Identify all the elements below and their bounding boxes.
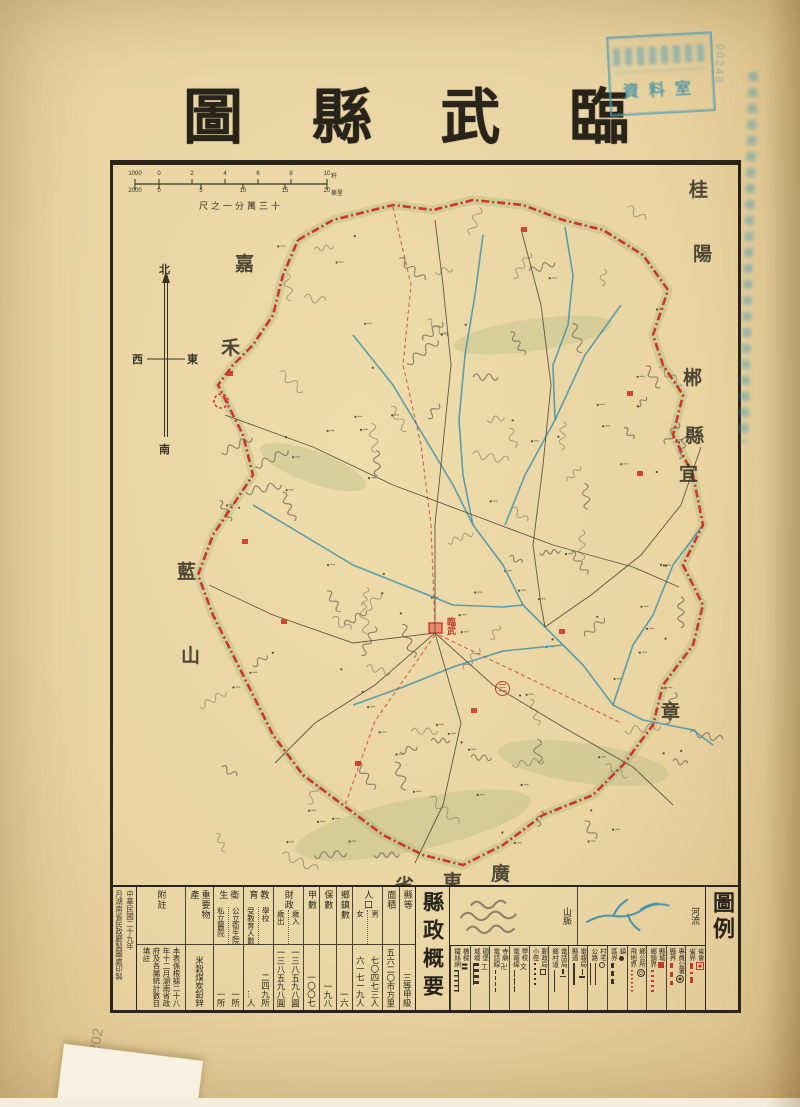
legend-point-symbol (658, 962, 664, 968)
stats-header: 甲數 (306, 890, 317, 910)
stats-header: 保數 (322, 890, 333, 910)
title-char: 圖 (183, 69, 243, 156)
stats-header: 縣等 (402, 890, 413, 910)
scale-tick: 8 (289, 171, 292, 177)
legend-point-label: 鄉公所 (637, 948, 644, 968)
stats-column: 財政歲入歲出一三八五九八圓一三八五九八圓 (273, 887, 303, 1010)
stats-header: 衛生 (217, 890, 239, 907)
stats-value: 本表係根據二十八年十二月湖南省政府及各屬統計數目填註 (141, 947, 181, 1007)
neighbor-label: 省 (395, 871, 414, 885)
scale-tick: 1000 (128, 171, 141, 177)
legend-line-label: 區界 (609, 948, 616, 961)
compass-north: 北 (159, 261, 170, 277)
legend-item: 鎮區界 (607, 946, 627, 1010)
neighbor-label: 山 (181, 641, 200, 668)
legend-line-label: 省界 (688, 948, 695, 961)
stats-header: 附註 (155, 890, 166, 910)
legend-line-sample (651, 970, 654, 992)
neighbor-label: 藍 (177, 557, 196, 584)
stats-value: 一三八五九八圓 (290, 948, 300, 1008)
info-strip: 中華民國二十九年 月湖南省民政廳製圖處印製 縣等三等甲級面積五六二〇市方里人口男… (113, 885, 738, 1010)
legend-point-symbol (696, 962, 704, 970)
stats-value: 三等甲級 (402, 973, 412, 1007)
legend-line-label: 飛地界 (629, 948, 636, 968)
scale-tick: 2 (190, 171, 193, 177)
paper-edge (0, 1098, 800, 1107)
stats-column: 衛生公立衛生院私立醫院一所一所 (213, 887, 243, 1010)
stats-value: 二四九所 (261, 973, 271, 1007)
stats-column: 面積五六二〇市方里 (382, 887, 398, 1010)
legend-title: 圖例 (705, 887, 738, 1010)
legend: 山脈河流 省會省界專員公署縣界縣城鄉鎮界鄉公所飛地界鎮區界村宅公路電報局縣道電話… (450, 887, 705, 1010)
neighbor-label: 東 (443, 867, 462, 885)
legend-point-label: 電話局 (559, 948, 566, 968)
stats-value: 米穀煤炭鉛鋅 (194, 956, 204, 1007)
stats-column: 縣等三等甲級 (399, 887, 415, 1010)
stats-subheader: 歲入 (291, 910, 300, 944)
legend-item: 專員公署縣界 (666, 946, 686, 1010)
legend-line-label: 縣界 (668, 948, 675, 961)
stats-subheader: 公立衛生院 (231, 907, 240, 945)
legend-line-sample (611, 963, 614, 985)
neighbor-label: 章 (661, 697, 680, 724)
legend-line-sample (534, 963, 536, 985)
legend-point-symbol (637, 969, 645, 977)
compass-south: 南 (159, 441, 170, 457)
stats-header: 面積 (385, 890, 396, 910)
map-drawing (113, 165, 738, 885)
legend-line-sample (573, 963, 575, 985)
stats-subheader: 歲出 (276, 910, 285, 944)
scale-tick: 10 (240, 188, 247, 194)
stats-column: 重要物產米穀煤炭鉛鋅 (185, 887, 213, 1010)
legend-line-label: 電話線 (492, 948, 499, 968)
scale-tick: 粁 (331, 171, 337, 180)
county-seat-marker (429, 623, 442, 633)
stamp-reading-room-text: 資料室 (614, 69, 710, 108)
legend-line-sample (590, 963, 596, 985)
legend-item: 省會省界 (685, 946, 705, 1010)
legend-point-symbol (579, 969, 585, 978)
scale-tick: 4 (223, 171, 226, 177)
legend-line-label: 縣道 (570, 948, 577, 961)
legend-item: 電話局鄉村道 (548, 946, 568, 1010)
legend-item: 電報局縣道 (568, 946, 588, 1010)
legend-point-label: 縣城 (657, 948, 664, 961)
stats-column: 教育學校受教育人數二四九所…人 (243, 887, 273, 1010)
stats-header: 教育 (247, 890, 269, 907)
stats-header: 重要物產 (188, 890, 210, 924)
legend-line-sample (473, 963, 479, 985)
stats-value: 一九八 (323, 982, 333, 1008)
scale-caption: 尺之一分萬三十 (161, 199, 321, 212)
legend-point-symbol: 〓 (461, 962, 468, 972)
legend-item: 碉堡工城墻 (470, 946, 490, 1010)
scale-tick: 2000 (128, 188, 141, 194)
stats-value: 一所 (216, 990, 226, 1007)
legend-line-label: 城墻 (472, 948, 479, 961)
legend-line-label: 電報線 (511, 948, 518, 968)
legend-terrain-label: 河流 (689, 907, 702, 925)
legend-point-symbol (676, 975, 684, 983)
scale-tick: 0 (157, 188, 160, 194)
map-sheet: 圖縣武臨 尺之一分萬三十 10000246810200005101520粁華里 … (0, 0, 800, 1107)
compass-west: 西 (132, 351, 143, 367)
district-boundaries (345, 207, 621, 805)
town-markers (227, 227, 643, 766)
legend-terrain-river: 河流 (577, 887, 705, 945)
paper-edge-shadow (766, 0, 800, 1107)
neighbor-label: 禾 (221, 333, 240, 360)
legend-line-sample (631, 970, 633, 992)
legend-line-sample (514, 970, 515, 992)
library-stamp: 資料室 (606, 31, 716, 116)
legend-point-symbol (599, 962, 605, 968)
legend-point-label: 寺廟 (500, 948, 507, 961)
stats-value: 六一七一九人 (355, 956, 365, 1007)
map-title: 圖縣武臨 (183, 70, 629, 154)
county-seat-label: 臨武 (445, 617, 458, 635)
neighbor-label: 縣 (685, 421, 704, 448)
legend-item: 村宅公路 (587, 946, 607, 1010)
neighbor-label: 嘉 (235, 249, 254, 276)
stats-subheader: 受教育人數 (246, 907, 255, 945)
district-numeral: 三 (495, 681, 510, 696)
colophon-line-1: 中華民國二十九年 (125, 890, 136, 1010)
legend-line-sample (554, 970, 555, 992)
stats-value: 七〇四七三人 (370, 956, 380, 1007)
neighbor-label: 宜 (679, 459, 698, 486)
legend-line-sample (454, 970, 459, 992)
neighbor-label: 桂 (689, 175, 708, 202)
legend-point-label: 學校 (520, 948, 527, 961)
legend-point-symbol (619, 956, 624, 961)
legend-line-sample (690, 963, 693, 985)
terrain-shading (198, 200, 703, 875)
scale-tick: 5 (199, 188, 202, 194)
colophon-line-2: 月湖南省民政廳製圖處印製 (114, 890, 125, 1010)
legend-point-label: 專員公署 (677, 948, 684, 974)
legend-point-label: 電報局 (579, 948, 586, 968)
legend-line-label: 鄉村道 (551, 948, 558, 968)
statistics-title: 縣政概要 (416, 887, 450, 1010)
legend-item: 縣城鄉鎮界 (646, 946, 666, 1010)
legend-item: 橋樑〓鐵絲網 (450, 946, 470, 1010)
scale-tick: 15 (282, 188, 289, 194)
stats-value: 五六二〇市方里 (386, 948, 396, 1008)
map-area: 尺之一分萬三十 10000246810200005101520粁華里 北 西 東… (113, 165, 738, 885)
stats-header: 鄉鎮數 (339, 890, 350, 920)
stats-header: 人口 (362, 890, 373, 910)
title-char: 縣 (312, 69, 372, 156)
neighbor-label: 陽 (693, 239, 712, 266)
legend-item: 學校文電報線 (509, 946, 529, 1010)
stamp-illegible-row (612, 38, 707, 74)
legend-point-label: 碉堡 (481, 948, 488, 961)
legend-point-symbol: 卍 (500, 962, 507, 972)
stats-subheader: 私立醫院 (216, 907, 225, 945)
legend-line-sample (495, 970, 496, 992)
stats-column: 附註本表係根據二十八年十二月湖南省政府及各屬統計數目填註 (137, 887, 185, 1010)
legend-line-label: 鄉鎮界 (649, 948, 656, 968)
county-statistics-table: 縣等三等甲級面積五六二〇市方里人口男女七〇四七三人六一七一九人鄉鎮數一六保數一九… (137, 887, 416, 1010)
stats-value: 一所 (231, 990, 241, 1007)
handwritten-margin-note (739, 72, 758, 442)
legend-columns: 省會省界專員公署縣界縣城鄉鎮界鄉公所飛地界鎮區界村宅公路電報局縣道電話局鄉村道郵… (450, 946, 705, 1010)
stats-value: 一〇〇七 (306, 973, 316, 1007)
neighbor-label: 郴 (683, 363, 702, 390)
legend-point-symbol (560, 969, 566, 977)
legend-point-symbol: 工 (481, 962, 488, 972)
stats-value: 一三八五九八圓 (276, 948, 286, 1008)
legend-point-label: 鎮 (618, 948, 625, 955)
legend-line-label: 鐵絲網 (453, 948, 460, 968)
catalog-number: 00248 (713, 44, 726, 85)
legend-line-label: 小徑 (531, 948, 538, 961)
stats-column: 鄉鎮數一六 (336, 887, 352, 1010)
stats-subheader: 女 (356, 910, 365, 944)
legend-point-label: 郵政局 (540, 948, 547, 968)
title-char: 武 (440, 69, 500, 156)
legend-point-label: 橋樑 (461, 948, 468, 961)
legend-terrain-label: 山脈 (561, 907, 574, 925)
stats-column: 人口男女七〇四七三人六一七一九人 (352, 887, 382, 1010)
compass-rose: 北 西 東 南 (131, 265, 201, 461)
legend-item: 郵政局小徑 (529, 946, 549, 1010)
compass-east: 東 (187, 351, 198, 367)
stats-subheader: 男 (371, 910, 380, 944)
colophon: 中華民國二十九年 月湖南省民政廳製圖處印製 (113, 887, 137, 1010)
scale-tick: 華里 (331, 188, 343, 197)
scale-bar: 尺之一分萬三十 10000246810200005101520粁華里 (131, 171, 343, 215)
legend-point-label: 村宅 (598, 948, 605, 961)
legend-point-symbol (540, 969, 546, 975)
legend-terrain-mountain: 山脈 (450, 887, 577, 945)
legend-item: 鄉公所飛地界 (627, 946, 647, 1010)
stats-column: 甲數一〇〇七 (303, 887, 319, 1010)
legend-line-label: 公路 (590, 948, 597, 961)
legend-point-label: 省會 (696, 948, 703, 961)
stats-value: 一六 (339, 990, 349, 1007)
stats-header: 財政 (283, 890, 294, 910)
legend-terrain-band: 山脈河流 (450, 887, 705, 946)
legend-line-sample (670, 963, 673, 985)
neighbor-label: 廣 (491, 859, 510, 885)
map-frame: 尺之一分萬三十 10000246810200005101520粁華里 北 西 東… (110, 160, 741, 1013)
scale-tick: 6 (256, 171, 259, 177)
stats-subheader: 學校 (261, 907, 270, 945)
legend-item: 寺廟卍電話線 (489, 946, 509, 1010)
scale-tick: 20 (324, 188, 331, 194)
scale-tick: 10 (324, 171, 331, 177)
stats-value: …人 (246, 990, 256, 1007)
legend-point-symbol: 文 (520, 962, 527, 972)
scale-tick: 0 (157, 171, 160, 177)
stats-column: 保數一九八 (319, 887, 335, 1010)
